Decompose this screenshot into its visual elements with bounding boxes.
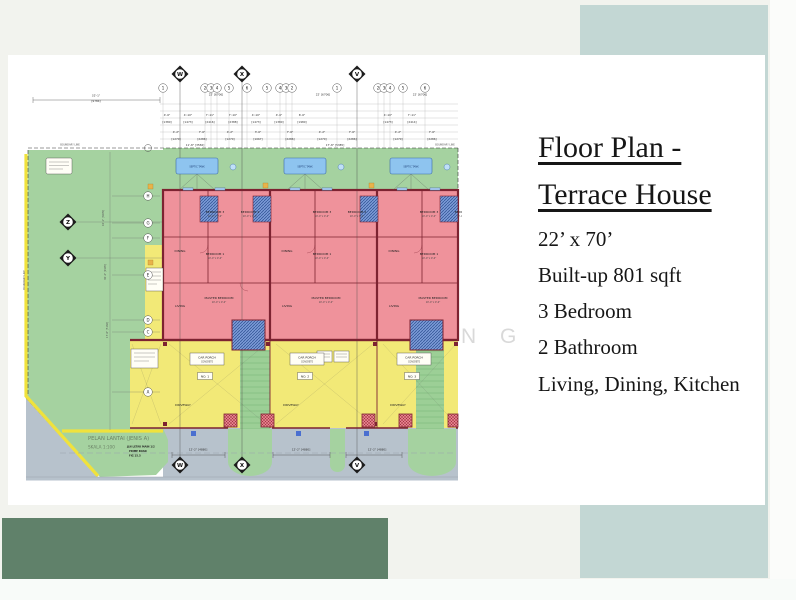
road-bottom-sliver <box>26 477 458 481</box>
overall-dim-mm: [9784] <box>91 99 100 103</box>
plan-text: A <box>147 390 150 395</box>
plan-text: NO. 2 <box>301 375 309 379</box>
plan-text: [1270] <box>171 137 180 141</box>
plan-text: [1473] <box>383 120 392 124</box>
info-spec-bathroom: 2 Bathroom <box>538 335 740 359</box>
floor-plan-image: 32'-1" [9784] 22' [6706] 22' [6706] 22' … <box>18 56 462 488</box>
plan-text: [2286] <box>347 137 356 141</box>
drawing-note: JLN LETAK MAIN 1/2 <box>126 445 155 449</box>
plan-text: [1270] <box>393 137 402 141</box>
plan-text: G <box>146 221 149 226</box>
info-spec-rooms: Living, Dining, Kitchen <box>538 372 740 396</box>
info-spec-size: 22’ x 70’ <box>538 227 740 251</box>
plan-text: 10'-0" x 9'-0" <box>208 215 222 218</box>
plan-text: 7'-10" <box>229 113 238 117</box>
plan-text: DINING <box>175 249 187 253</box>
plan-text: NO. 3 <box>408 375 416 379</box>
info-panel: Floor Plan - Terrace House 22’ x 70’ Bui… <box>538 131 740 408</box>
plan-text: CONCRETE <box>301 361 314 364</box>
boundary-label: BOUNDARY LINE <box>60 144 80 147</box>
unit-width-dim: 22' [6706] <box>316 93 331 97</box>
plan-text: 7'-11" <box>408 113 417 117</box>
plan-text: CAR PORCH <box>405 355 423 359</box>
plan-text: 3 <box>210 86 213 91</box>
plan-text: DRIVEWAY <box>283 403 299 407</box>
plan-text: 10'-0" x 9'-0" <box>350 215 364 218</box>
plan-text: [2286] <box>427 137 436 141</box>
plan-text: [1270] <box>317 137 326 141</box>
plan-text: [1473] <box>183 120 192 124</box>
plan-text: [1270] <box>225 137 234 141</box>
plan-text: 4'-6" <box>164 113 171 117</box>
plan-text: [2414] <box>407 120 416 124</box>
plan-text: 1 <box>162 86 165 91</box>
plan-text: 10'-0" x 9'-0" <box>243 215 257 218</box>
plan-text: 7'-11" <box>206 113 215 117</box>
plan-text: [2286] <box>285 137 294 141</box>
plan-text: 3'-6" <box>255 130 262 134</box>
plan-text: DRIVEWAY <box>390 403 406 407</box>
plan-text: BEDROOM 1 <box>420 252 439 256</box>
plan-text: MASTER BEDROOM <box>419 296 448 300</box>
plan-text: 10'-0" x 9'-0" <box>212 301 226 304</box>
unit-width-dim: 22' [6706] <box>209 93 224 97</box>
yard-dim: 10'-1" [3070] <box>102 210 105 226</box>
plan-text: 4'-2" <box>319 130 326 134</box>
plan-text: 11'-8" [3556] <box>186 143 205 147</box>
axis-marker: V <box>349 66 366 83</box>
plan-text: 3 <box>285 86 288 91</box>
plan-text: 4 <box>216 86 219 91</box>
plan-text: 2 <box>204 86 207 91</box>
plan-text: [1067] <box>253 137 262 141</box>
bottom-green-block <box>2 518 388 579</box>
plan-text: 17'-8" [5385] <box>326 143 345 147</box>
plan-text: 2 <box>291 86 294 91</box>
plan-text: BEDROOM 2 <box>455 210 462 214</box>
plan-text: 7'-6" <box>199 130 206 134</box>
plan-text: 10'-0" x 9'-0" <box>422 215 436 218</box>
plan-text: [2286] <box>197 137 206 141</box>
plan-text: 10'-0" x 9'-0" <box>426 301 440 304</box>
plan-text: 12'-2" [4880] <box>292 448 311 452</box>
plan-text: 7'-6" <box>287 130 294 134</box>
slide: { "page": { "background": "#f2f3ee", "ca… <box>0 0 796 600</box>
plan-text: 4'-2" <box>227 130 234 134</box>
axis-marker-letter: W <box>177 463 183 469</box>
axis-marker-letter: V <box>355 463 360 469</box>
plan-text: 4'-10" <box>384 113 393 117</box>
info-spec-builtup: Built-up 801 sqft <box>538 263 740 287</box>
plan-text: 4'-6" <box>276 113 283 117</box>
plan-text: 5 <box>266 86 269 91</box>
plan-text: C <box>147 330 150 335</box>
drawing-note: FIG 15.5 <box>129 454 141 458</box>
plan-text: 4 <box>279 86 282 91</box>
plan-text: CAR PORCH <box>298 355 316 359</box>
plan-text: BEDROOM 3 <box>313 210 332 214</box>
overall-dim-ft: 32'-1" <box>92 94 101 98</box>
plan-text: [1380] <box>274 120 283 124</box>
plan-text: LIVING <box>282 304 293 308</box>
plan-text: [2388] <box>228 120 237 124</box>
plan-text: 7'-6" <box>429 130 436 134</box>
plan-text: 10'-0" x 9'-0" <box>457 215 462 218</box>
plan-text: LIVING <box>389 304 400 308</box>
info-spec-bedroom: 3 Bedroom <box>538 299 740 323</box>
plan-text: 10'-0" x 9'-0" <box>208 257 222 260</box>
axis-marker-letter: W <box>177 72 183 78</box>
plan-text: LIVING <box>175 304 186 308</box>
plan-text: BEDROOM 3 <box>206 210 225 214</box>
axis-marker: X <box>234 66 251 83</box>
plan-text: BEDROOM 1 <box>206 252 225 256</box>
plan-text: 10'-0" x 9'-0" <box>422 257 436 260</box>
floor-plan-svg: 32'-1" [9784] 22' [6706] 22' [6706] 22' … <box>18 56 462 488</box>
plan-text: CONCRETE <box>201 361 214 364</box>
info-title-line2: Terrace House <box>538 178 740 211</box>
plan-text: [2416] <box>205 120 214 124</box>
axis-marker-letter: V <box>355 72 360 78</box>
plan-text: SEPTIC TANK <box>403 165 419 168</box>
plan-text: 5 <box>228 86 231 91</box>
yard-dim: 30'-2" [9195] <box>104 264 107 280</box>
plan-text: DINING <box>282 249 294 253</box>
watermark-letter: N <box>461 325 476 349</box>
drawing-note: PRIME ROAD <box>129 449 147 453</box>
plan-text: CONCRETE <box>408 361 421 364</box>
axis-marker-letter: Z <box>66 220 70 226</box>
plan-text: SEPTIC TANK <box>189 165 205 168</box>
plan-text: [1473] <box>251 120 260 124</box>
plan-text: 10'-0" x 9'-0" <box>315 257 329 260</box>
plan-text: 3 <box>383 86 386 91</box>
plan-text: 12'-2" [4880] <box>368 448 387 452</box>
plan-text: 1 <box>336 86 339 91</box>
plan-text: 7'-6" <box>349 130 356 134</box>
plan-text: SEPTIC TANK <box>297 165 313 168</box>
plan-text: H <box>146 194 149 199</box>
plan-text: 4'-10" <box>252 113 261 117</box>
drawing-title: PELAN LANTAI (JENIS A) <box>88 436 149 442</box>
yard-dim: 17'-0" [5182] <box>106 322 109 338</box>
plan-text: DRIVEWAY <box>175 403 191 407</box>
plan-text: 10'-0" x 9'-0" <box>315 215 329 218</box>
plan-text: D <box>146 318 149 323</box>
plan-text: 6'-6" <box>299 113 306 117</box>
bottom-strip <box>0 579 796 600</box>
unit-width-dim: 22' [6706] <box>413 93 428 97</box>
plan-text: 4 <box>389 86 392 91</box>
axis-marker: W <box>172 66 189 83</box>
boundary-label-vertical: BOUNDARY LINE <box>23 270 26 290</box>
plan-text: BEDROOM 3 <box>420 210 439 214</box>
plan-text: MASTER BEDROOM <box>205 296 234 300</box>
plan-text: 4'-2" <box>395 130 402 134</box>
plan-text: CAR PORCH <box>198 355 216 359</box>
plan-text: BEDROOM 2 <box>241 210 260 214</box>
info-title-line1: Floor Plan - <box>538 131 740 164</box>
plan-text: 4'-10" <box>184 113 193 117</box>
plan-text: 12'-2" [4880] <box>189 448 208 452</box>
plan-text: BEDROOM 2 <box>348 210 367 214</box>
plan-text: 10'-0" x 9'-0" <box>319 301 333 304</box>
grid-bubbles: 1234565432123456 <box>159 84 430 93</box>
plan-text: MASTER BEDROOM <box>312 296 341 300</box>
plan-text: 5 <box>402 86 405 91</box>
plan-text: [1980] <box>297 120 306 124</box>
boundary-label: BOUNDARY LINE <box>435 144 455 147</box>
septic-tanks: SEPTIC TANKSEPTIC TANKSEPTIC TANK <box>176 158 432 174</box>
plan-text: 6 <box>424 86 427 91</box>
plan-text: [1380] <box>162 120 171 124</box>
plan-text: 4'-2" <box>173 130 180 134</box>
plan-text: BEDROOM 1 <box>313 252 332 256</box>
drawing-scale: SKALA 1:100 <box>88 445 115 450</box>
plan-text: NO. 1 <box>201 375 209 379</box>
right-margin <box>770 0 796 600</box>
plan-text: 2 <box>377 86 380 91</box>
plan-text: 6 <box>246 86 249 91</box>
watermark-letter: G <box>500 325 516 349</box>
plan-text: DINING <box>389 249 401 253</box>
